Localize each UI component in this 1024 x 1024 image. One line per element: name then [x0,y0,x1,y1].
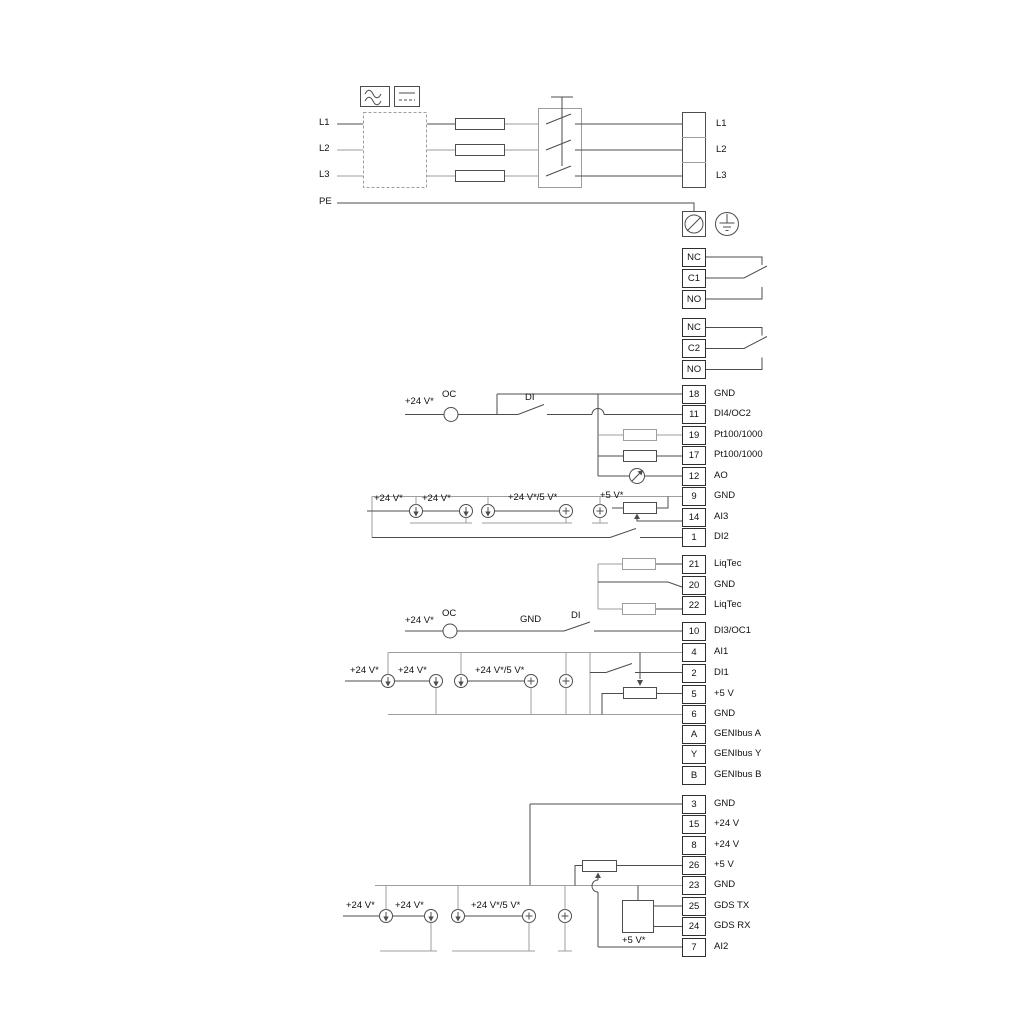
current-source-icon [382,675,395,688]
mains-output-terminal-block [682,113,706,188]
mains-output-l3: L3 [716,170,727,181]
current-source-icon [425,910,438,923]
terminal-label: AI3 [714,508,728,526]
terminal-label: GDS RX [714,917,750,935]
terminal-number: 15 [682,815,706,834]
terminal-number: A [682,725,706,744]
terminal-label: LiqTec [714,555,741,573]
changeover-contact-icon [706,257,767,370]
wiring-svg [0,0,1024,1024]
relay-terminal: C1 [682,269,706,288]
gnd-label: GND [520,614,541,625]
voltage-source-icon [523,910,536,923]
terminal-label: GND [714,876,735,894]
terminal-label: GND [714,795,735,813]
cable-clamp-icon [683,212,706,237]
mains-output-l1: L1 [716,118,727,129]
mains-input-pe: PE [319,196,332,207]
oc-label: OC [442,389,456,400]
filter-box [364,113,427,188]
terminal-label: GDS TX [714,897,749,915]
di-label: DI [571,610,581,621]
oc-label: OC [442,608,456,619]
potentiometer-icon [624,503,657,514]
current-source-icon [430,675,443,688]
open-collector-icon [443,624,457,638]
terminal-number: 25 [682,897,706,916]
terminal-label: GENIbus A [714,725,761,743]
terminal-label: GND [714,385,735,403]
terminal-number: 21 [682,555,706,574]
v24-label: +24 V* [398,665,427,676]
current-source-icon [452,910,465,923]
di3-oc1-section [405,622,682,638]
fuse-icon [456,119,505,182]
main-switch-icon [539,97,582,188]
relay-terminal: NO [682,290,706,309]
terminal-label: AI1 [714,643,728,661]
v24-label: +24 V* [405,396,434,407]
terminal-label: GND [714,487,735,505]
analog-meter-icon [630,469,645,484]
terminal-label: GND [714,576,735,594]
terminal-number: 12 [682,467,706,486]
terminal-number: 2 [682,664,706,683]
terminal-number: 5 [682,685,706,704]
relay-terminal: C2 [682,339,706,358]
terminal-label: GND [714,705,735,723]
mains-input-l3: L3 [319,169,330,180]
terminal-label: AI2 [714,938,728,956]
ai1-section [345,653,682,715]
terminal-label: +5 V [714,685,734,703]
terminal-number: 8 [682,836,706,855]
terminal-label: LiqTec [714,596,741,614]
wiring-diagram: L1 L2 L3 PE L1 L2 L3 NC C1 NO NC C2 NO 1… [0,0,1024,1024]
terminal-number: 24 [682,917,706,936]
relay-terminal: NO [682,360,706,379]
voltage-source-icon [525,675,538,688]
gds-sensor-icon [623,901,654,933]
v5-label: +5 V* [622,935,646,946]
open-collector-icon [444,408,458,422]
v5-label: +5 V* [600,490,624,501]
potentiometer-icon [624,688,657,699]
terminal-number: Y [682,745,706,764]
protective-earth-icon [716,213,739,236]
terminal-label: GENIbus B [714,766,762,784]
terminal-number: 23 [682,876,706,895]
terminal-label: Pt100/1000 [714,446,763,464]
terminal-number: 19 [682,426,706,445]
liqtec-section [598,559,682,615]
terminal-label: +5 V [714,856,734,874]
v24-label: +24 V* [405,615,434,626]
v24-5v-label: +24 V*/5 V* [508,492,557,503]
v24-label: +24 V* [346,900,375,911]
v24-label: +24 V* [422,493,451,504]
voltage-source-icon [560,505,573,518]
resistor-icon [624,451,657,462]
terminal-label: GENIbus Y [714,745,761,763]
voltage-source-icon [560,675,573,688]
terminal-number: 1 [682,528,706,547]
voltage-source-icon [594,505,607,518]
terminal-label: +24 V [714,836,739,854]
mains-input-l1: L1 [319,117,330,128]
voltage-source-icon [559,910,572,923]
sine-wave-icon [361,87,390,107]
current-source-icon [455,675,468,688]
mains-power-section [337,87,739,237]
terminal-number: 18 [682,385,706,404]
ai2-section [343,804,682,951]
resistor-icon [623,604,656,615]
v24-label: +24 V* [374,493,403,504]
v24-label: +24 V* [350,665,379,676]
potentiometer-icon [583,861,617,872]
current-source-icon [410,505,423,518]
terminal-label: DI1 [714,664,729,682]
mains-input-l2: L2 [319,143,330,154]
di4-oc2-section [405,394,682,484]
terminal-number: B [682,766,706,785]
terminal-number: 17 [682,446,706,465]
relay-terminal: NC [682,248,706,267]
di-label: DI [525,392,535,403]
mains-output-l2: L2 [716,144,727,155]
terminal-number: 22 [682,596,706,615]
v24-5v-label: +24 V*/5 V* [471,900,520,911]
terminal-number: 20 [682,576,706,595]
resistor-icon [623,559,656,570]
current-source-icon [380,910,393,923]
terminal-number: 11 [682,405,706,424]
terminal-number: 14 [682,508,706,527]
terminal-number: 6 [682,705,706,724]
terminal-number: 4 [682,643,706,662]
v24-5v-label: +24 V*/5 V* [475,665,524,676]
terminal-label: DI3/OC1 [714,622,751,640]
terminal-label: +24 V [714,815,739,833]
resistor-icon [624,430,657,441]
current-source-icon [460,505,473,518]
terminal-number: 10 [682,622,706,641]
v24-label: +24 V* [395,900,424,911]
terminal-label: DI2 [714,528,729,546]
terminal-number: 26 [682,856,706,875]
terminal-label: DI4/OC2 [714,405,751,423]
current-source-icon [482,505,495,518]
terminal-number: 3 [682,795,706,814]
relay-terminal: NC [682,318,706,337]
terminal-label: AO [714,467,728,485]
terminal-number: 7 [682,938,706,957]
terminal-label: Pt100/1000 [714,426,763,444]
terminal-number: 9 [682,487,706,506]
dc-line-icon [395,87,420,107]
